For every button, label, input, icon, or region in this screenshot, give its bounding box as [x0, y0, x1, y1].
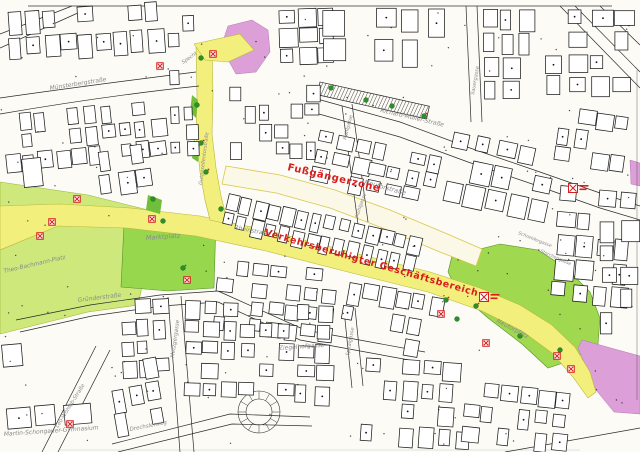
street-label: Schneidergasse: [517, 230, 552, 249]
building: [615, 32, 628, 50]
building: [614, 11, 634, 26]
parcel-dot: [191, 77, 192, 78]
building: [85, 126, 98, 145]
building: [318, 306, 333, 323]
building: [298, 8, 317, 27]
parcel-dot: [266, 356, 267, 357]
map-canvas: MünsterbergstraßeSpechtGutgesellentorstr…: [0, 0, 640, 452]
parcel-dot: [168, 68, 169, 69]
parcel-dot: [367, 35, 368, 36]
parcel-dot: [206, 271, 207, 272]
building: [484, 9, 498, 27]
tree-icon: [219, 207, 224, 212]
parcel-dot: [163, 296, 164, 297]
building: [600, 222, 614, 243]
parcel-dot: [445, 150, 446, 151]
building: [123, 361, 138, 379]
parcel-dot: [10, 361, 11, 362]
building-block: [440, 131, 559, 224]
parcel-dot: [127, 177, 128, 178]
building: [534, 433, 547, 452]
parcel-dot: [442, 301, 443, 302]
zone-gutgesellentorstrasse: [196, 46, 228, 224]
building: [569, 55, 588, 73]
building: [621, 289, 632, 307]
parcel-dot: [443, 295, 444, 296]
parcel-dot: [133, 35, 134, 36]
building: [67, 108, 79, 125]
parcel-dot: [5, 336, 6, 337]
parcel-dot: [448, 47, 449, 48]
building: [395, 291, 411, 309]
parcel-dot: [605, 322, 607, 324]
parcel-dot: [405, 308, 406, 309]
building: [316, 365, 334, 381]
parcel-dot: [498, 236, 499, 237]
parcel-dot: [609, 274, 611, 276]
parcel-dot: [130, 293, 131, 294]
building: [184, 383, 200, 396]
building: [547, 76, 560, 95]
building: [323, 11, 345, 37]
building: [461, 426, 479, 443]
building: [569, 32, 587, 47]
building: [356, 139, 372, 154]
parcel-dot: [382, 244, 383, 245]
parcel-dot: [226, 277, 227, 278]
parcel-dot: [264, 56, 265, 57]
parcel-dot: [627, 174, 628, 175]
tree-icon: [474, 304, 479, 309]
parcel-dot: [488, 252, 489, 253]
parcel-dot: [362, 368, 363, 369]
building: [99, 174, 112, 194]
building: [394, 233, 406, 247]
building: [42, 11, 55, 28]
building: [520, 10, 535, 32]
building: [57, 150, 72, 168]
zone-pink-east-sliver: [630, 160, 640, 186]
round-structure: [238, 391, 280, 433]
parcel-dot: [535, 172, 536, 173]
building: [205, 301, 217, 314]
building: [485, 81, 495, 99]
building: [279, 28, 298, 48]
building: [578, 109, 597, 126]
building: [275, 125, 288, 138]
sign-note-text: [580, 189, 587, 191]
parcel-dot: [505, 19, 507, 21]
building: [304, 287, 317, 300]
building: [464, 404, 481, 418]
building: [484, 33, 494, 52]
building-block: [323, 8, 445, 67]
parcel-dot: [96, 167, 97, 168]
building: [34, 113, 46, 133]
sign-note-text: [491, 298, 498, 300]
parcel-dot: [569, 214, 570, 215]
tree-icon: [151, 197, 156, 202]
building: [554, 146, 571, 161]
parcel-dot: [479, 350, 480, 351]
building: [69, 128, 81, 143]
parcel-dot: [21, 305, 22, 306]
parcel-dot: [538, 249, 539, 250]
sign-note-text: [491, 294, 500, 296]
parcel-dot: [556, 49, 557, 50]
traffic-sign-icon: [37, 233, 44, 240]
parcel-dot: [548, 290, 549, 291]
parcel-dot: [434, 433, 435, 434]
parcel-dot: [15, 255, 16, 256]
parcel-dot: [21, 57, 22, 58]
building: [151, 118, 168, 137]
parcel-dot: [27, 220, 28, 221]
building: [497, 428, 509, 446]
building: [101, 106, 112, 124]
parcel-dot: [621, 402, 622, 403]
building: [609, 154, 625, 172]
building: [238, 197, 252, 216]
building: [317, 325, 330, 339]
building-block: [484, 9, 535, 99]
building: [137, 341, 147, 354]
building: [591, 153, 610, 172]
building: [136, 319, 148, 336]
parcel-dot: [316, 291, 317, 292]
parcel-dot: [540, 38, 541, 39]
parcel-dot: [507, 273, 508, 274]
traffic-sign-icon: [149, 216, 156, 223]
building: [71, 148, 87, 165]
building: [77, 34, 92, 59]
parcel-dot: [265, 132, 267, 134]
parcel-dot: [326, 157, 327, 158]
building-block: [95, 141, 172, 198]
parcel-dot: [124, 361, 125, 362]
building: [2, 344, 23, 368]
tree-icon: [390, 104, 395, 109]
tree-red-dot: [426, 113, 428, 115]
building: [372, 142, 386, 160]
parcel-dot: [121, 372, 122, 373]
traffic-sign-icon: [49, 219, 56, 226]
building: [122, 322, 136, 335]
parcel-dot: [595, 270, 596, 271]
parcel-dot: [403, 97, 404, 98]
building: [442, 362, 461, 382]
parcel-dot: [243, 118, 244, 119]
parcel-dot: [357, 363, 358, 364]
building: [600, 246, 613, 261]
parcel-dot: [225, 372, 226, 373]
building: [269, 302, 284, 315]
building: [323, 215, 336, 230]
building: [253, 263, 269, 276]
parcel-dot: [444, 146, 445, 147]
parcel-dot: [297, 384, 298, 385]
traffic-sign-icon: [483, 340, 490, 347]
street-label: Spitalgasse: [345, 327, 356, 356]
building: [556, 211, 576, 227]
building: [132, 102, 146, 116]
parcel-dot: [446, 388, 447, 389]
parcel-dot: [224, 262, 225, 263]
building: [201, 363, 218, 379]
parcel-dot: [307, 123, 308, 124]
parcel-dot: [263, 112, 265, 114]
building: [439, 384, 453, 403]
parcel-dot: [628, 25, 629, 26]
parcel-dot: [8, 312, 9, 313]
parcel-dot: [579, 328, 580, 329]
building: [443, 181, 463, 204]
parcel-dot: [47, 312, 48, 313]
parcel-dot: [145, 76, 146, 77]
parcel-dot: [8, 201, 9, 202]
parcel-dot: [383, 433, 384, 434]
building-block: [553, 106, 630, 173]
parcel-dot: [248, 315, 249, 316]
parcel-dot: [477, 270, 478, 271]
parcel-dot: [455, 417, 456, 418]
building: [339, 219, 351, 232]
parcel-dot: [602, 17, 604, 19]
parcel-dot: [343, 313, 344, 314]
parcel-dot: [26, 414, 27, 415]
tree-red-dot: [208, 169, 210, 171]
tree-icon: [181, 266, 186, 271]
building: [386, 166, 400, 179]
building: [577, 213, 590, 230]
building: [8, 38, 21, 60]
building: [230, 87, 241, 101]
building: [286, 285, 301, 302]
parcel-dot: [305, 19, 306, 20]
parcel-dot: [584, 242, 585, 243]
parcel-dot: [438, 409, 439, 410]
parcel-dot: [572, 178, 573, 179]
building: [98, 151, 110, 172]
building: [297, 304, 309, 319]
tree-icon: [161, 219, 166, 224]
building: [402, 359, 420, 375]
tree-icon: [558, 348, 563, 353]
parcel-dot: [131, 145, 132, 146]
building: [368, 162, 386, 177]
building: [507, 194, 529, 220]
building-block: [1, 338, 92, 430]
building: [291, 104, 303, 118]
parcel-dot: [436, 22, 438, 24]
building: [321, 289, 336, 304]
building: [620, 192, 636, 209]
parcel-dot: [345, 113, 346, 114]
parcel-dot: [62, 142, 63, 143]
parcel-dot: [187, 381, 188, 382]
building: [8, 11, 22, 35]
building: [362, 283, 380, 300]
parcel-dot: [413, 246, 414, 247]
parcel-dot: [513, 440, 514, 441]
tree-red-dot: [185, 265, 187, 267]
building: [6, 154, 22, 174]
parcel-dot: [577, 84, 579, 86]
building: [184, 107, 192, 120]
building: [485, 58, 499, 77]
building: [185, 320, 199, 332]
building: [592, 77, 610, 97]
parcel-dot: [304, 75, 305, 76]
parcel-dot: [108, 215, 109, 216]
tree-red-dot: [478, 303, 480, 305]
building: [19, 112, 32, 130]
building: [128, 5, 142, 20]
parcel-dot: [507, 136, 508, 137]
parcel-dot: [603, 255, 604, 256]
building: [22, 157, 44, 187]
building: [238, 382, 254, 395]
building: [290, 144, 302, 159]
building-block: [230, 85, 320, 159]
parcel-dot: [350, 435, 351, 436]
building: [403, 381, 419, 402]
parcel-dot: [457, 259, 458, 260]
building: [203, 322, 220, 338]
building: [575, 260, 594, 280]
parcel-dot: [64, 315, 65, 316]
parcel-dot: [94, 146, 95, 147]
parcel-dot: [405, 218, 406, 219]
building: [538, 390, 556, 408]
building: [552, 414, 565, 427]
tree-icon: [199, 56, 204, 61]
building: [406, 318, 421, 336]
building: [168, 33, 179, 47]
parcel-dot: [489, 70, 490, 71]
building: [226, 194, 241, 212]
parcel-dot: [583, 182, 584, 183]
town-map: MünsterbergstraßeSpechtGutgesellentorstr…: [0, 0, 640, 452]
traffic-sign-icon: [438, 311, 445, 318]
parcel-dot: [289, 92, 290, 93]
tree-red-dot: [448, 297, 450, 299]
parcel-dot: [25, 384, 26, 385]
parcel-dot: [53, 23, 54, 24]
street-label: Metzgergasse: [170, 319, 181, 358]
traffic-sign-icon: [74, 196, 81, 203]
parcel-dot: [346, 97, 347, 98]
parcel-dot: [505, 433, 506, 434]
building: [186, 125, 198, 140]
building-block: [166, 15, 199, 156]
street-label: Münsterbergstraße: [49, 76, 107, 92]
parcel-dot: [44, 225, 45, 226]
tree-icon: [329, 86, 334, 91]
traffic-sign-icon: [67, 421, 74, 428]
tree-icon: [195, 103, 200, 108]
tree-icon: [364, 98, 369, 103]
tree-icon: [455, 317, 460, 322]
building: [480, 406, 492, 422]
building: [595, 113, 614, 132]
parcel-dot: [596, 389, 597, 390]
building: [237, 261, 249, 277]
parcel-dot: [565, 253, 566, 254]
parcel-dot: [443, 443, 444, 444]
parcel-dot: [313, 93, 315, 95]
parcel-dot: [17, 162, 18, 163]
building: [216, 278, 234, 293]
building: [519, 33, 529, 55]
parcel-dot: [391, 169, 392, 170]
building: [122, 342, 135, 356]
building: [484, 383, 499, 398]
building: [22, 134, 33, 148]
building-block: [7, 1, 166, 64]
building: [170, 70, 180, 84]
traffic-sign-icon: [210, 51, 217, 58]
building: [379, 286, 397, 309]
parcel-dot: [631, 306, 632, 307]
parcel-dot: [528, 140, 529, 141]
building: [251, 283, 267, 298]
parcel-dot: [498, 37, 499, 38]
building: [83, 105, 96, 123]
traffic-sign-icon: [157, 63, 164, 70]
building: [332, 152, 350, 167]
parcel-dot: [1, 109, 2, 110]
parcel-dot: [203, 245, 204, 246]
building: [528, 199, 549, 223]
building: [130, 144, 144, 164]
building: [535, 410, 548, 424]
building-block: [461, 381, 573, 452]
building: [502, 35, 513, 55]
parcel-dot: [309, 323, 310, 324]
building: [402, 10, 419, 32]
parcel-dot: [310, 150, 312, 152]
parcel-dot: [391, 27, 392, 28]
parcel-dot: [550, 177, 551, 178]
building: [403, 339, 420, 358]
parcel-dot: [519, 240, 520, 241]
building: [615, 116, 629, 130]
parcel-dot: [282, 147, 284, 149]
building: [551, 281, 566, 296]
parcel-dot: [438, 405, 439, 406]
building: [438, 429, 450, 446]
building: [114, 412, 129, 437]
parcel-dot: [97, 37, 98, 38]
parcel-dot: [37, 131, 38, 132]
parcel-dot: [269, 414, 270, 415]
building: [592, 286, 606, 306]
parcel-dot: [383, 49, 385, 51]
building: [251, 302, 264, 317]
building: [402, 40, 417, 67]
parcel-dot: [628, 275, 630, 277]
parcel-dot: [115, 375, 116, 376]
parcel-dot: [552, 208, 553, 209]
parcel-dot: [437, 12, 438, 13]
parcel-dot: [208, 397, 209, 398]
building: [130, 30, 143, 53]
building: [300, 324, 316, 337]
parcel-dot: [304, 135, 305, 136]
building: [245, 107, 255, 124]
building: [25, 10, 40, 34]
